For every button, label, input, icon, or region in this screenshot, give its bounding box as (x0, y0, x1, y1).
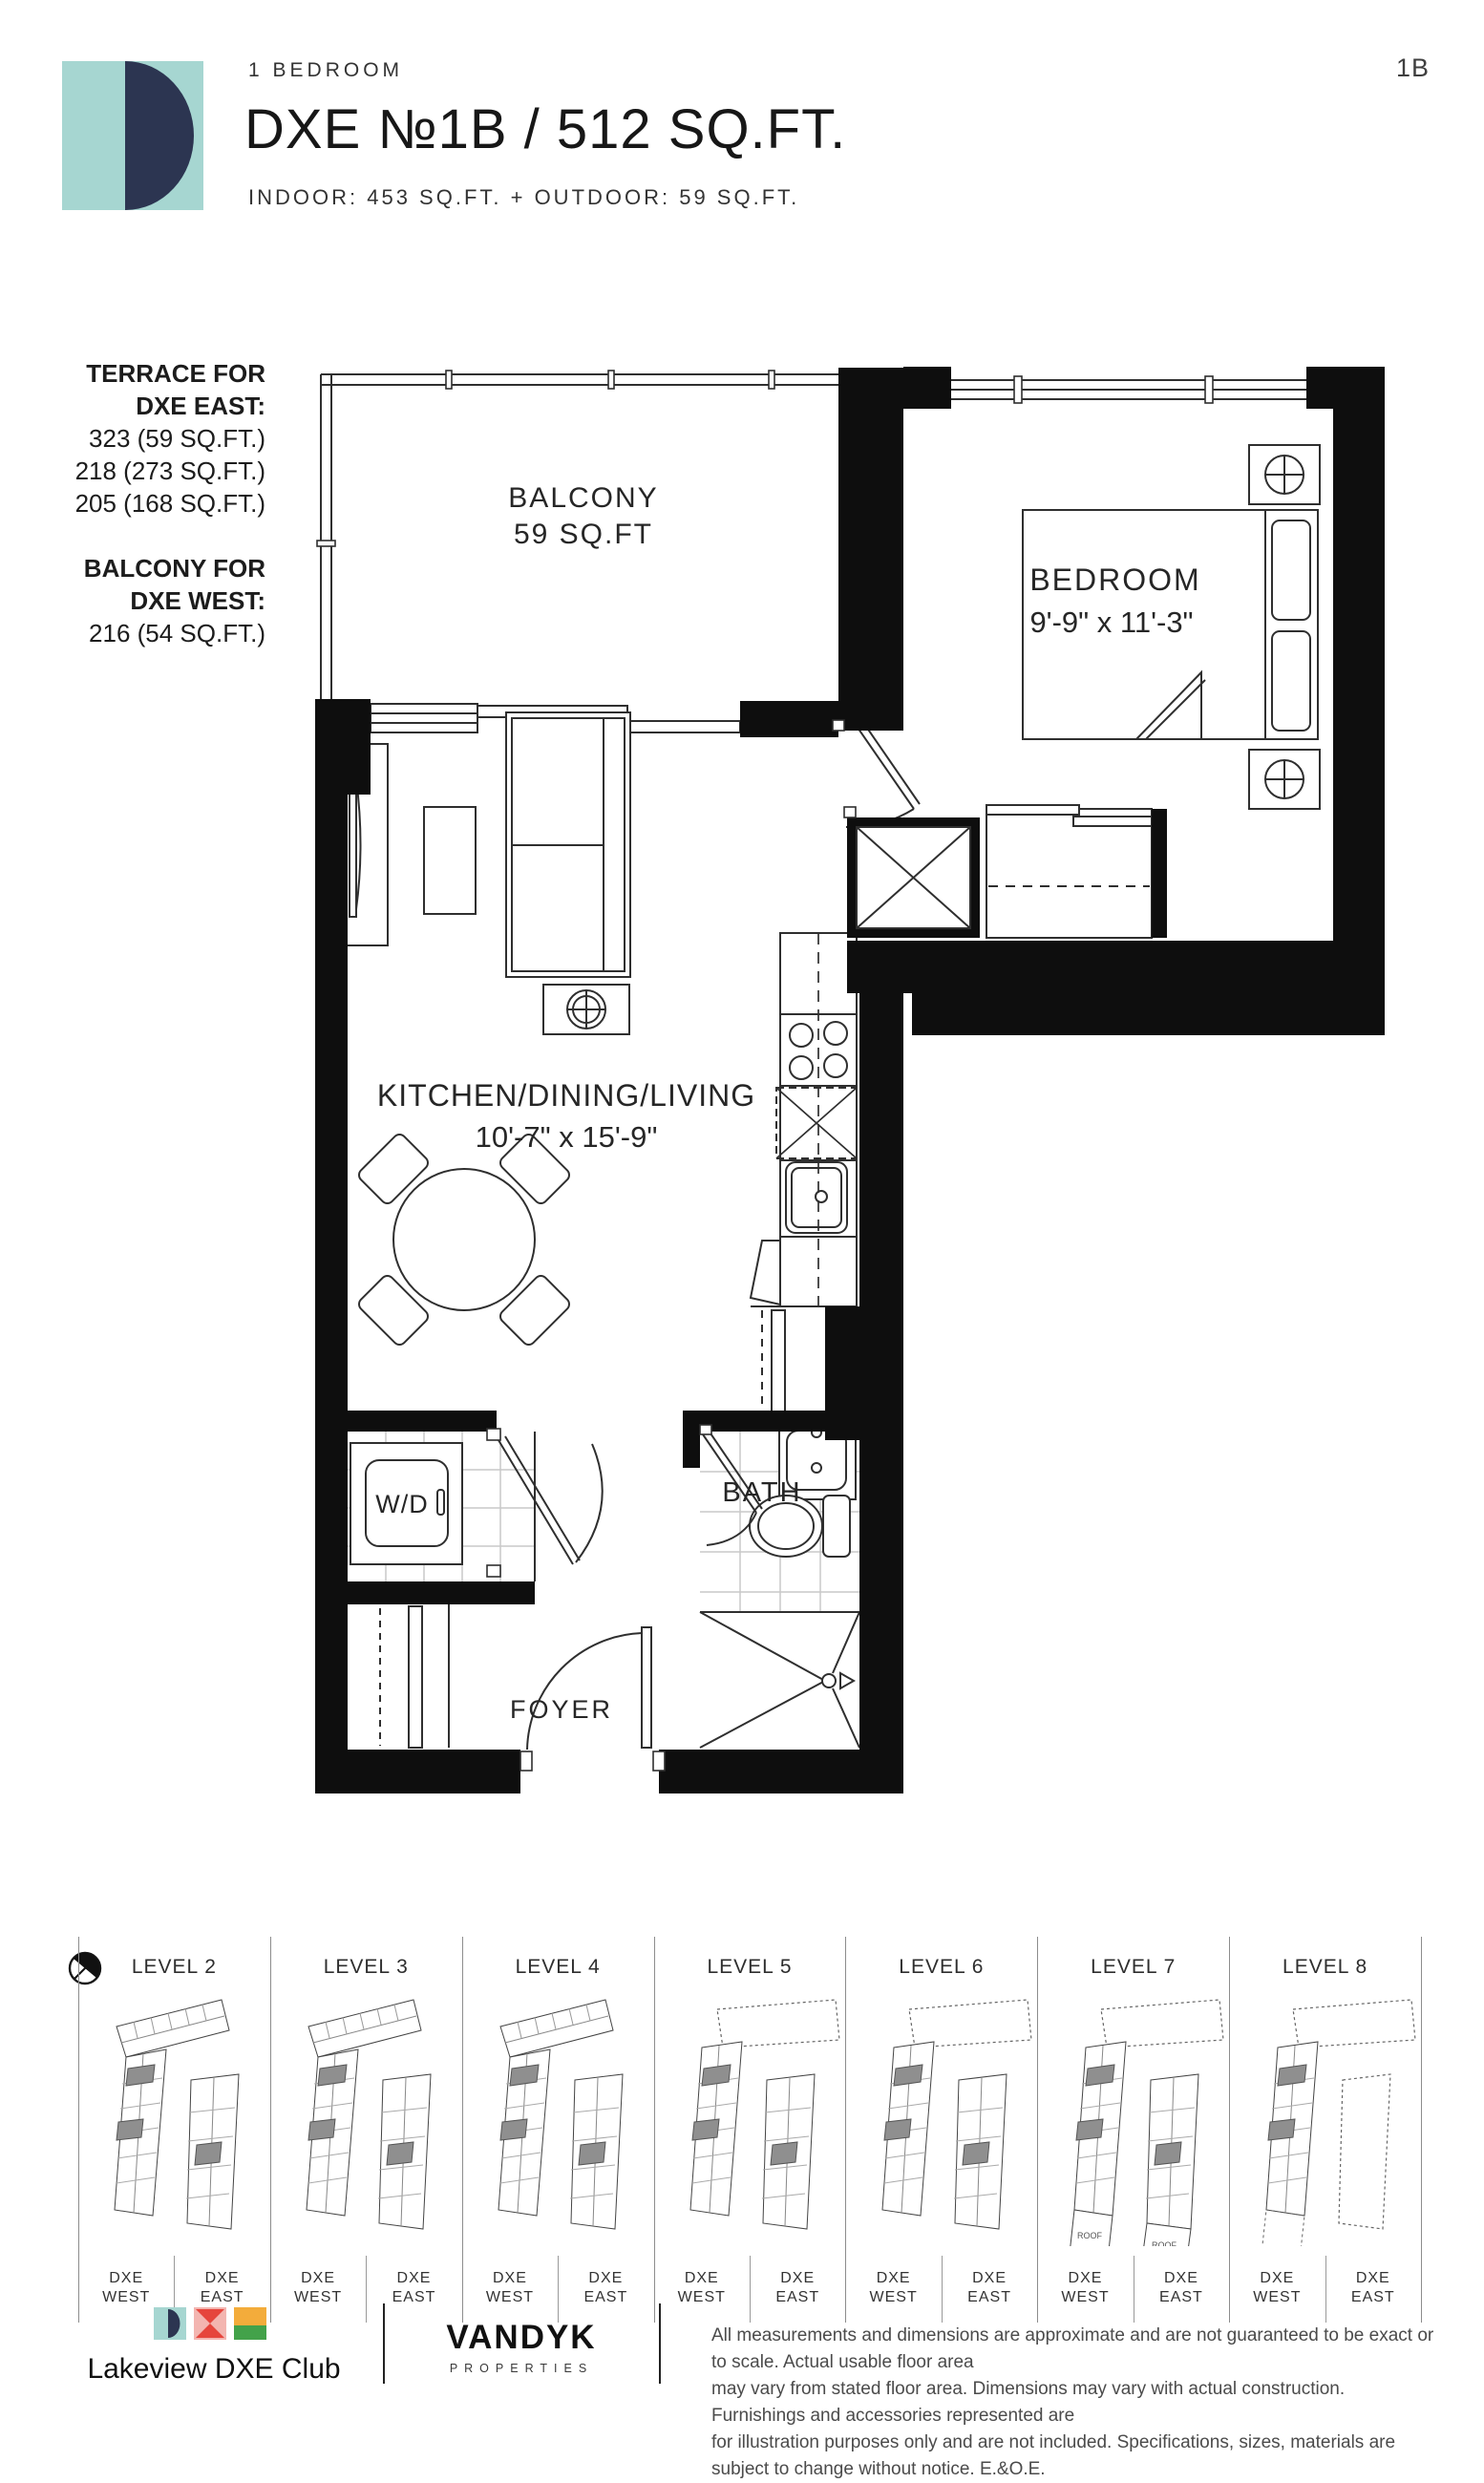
terrace-balcony-notes: TERRACE FOR DXE EAST: 323 (59 SQ.FT.) 21… (38, 357, 265, 649)
dxe-west-label: DXEWEST (274, 2269, 362, 2307)
terrace-item: 323 (59 SQ.FT.) (38, 422, 265, 455)
brand-square-d-icon (154, 2307, 186, 2340)
level-label: LEVEL 4 (462, 1956, 654, 1979)
svg-text:ROOF: ROOF (1152, 2240, 1177, 2246)
dxe-east-label: DXEEAST (370, 2269, 457, 2307)
terrace-heading-2: DXE EAST: (38, 390, 265, 422)
dxe-east-label: DXEEAST (753, 2269, 841, 2307)
level-cell: LEVEL 5DXEWESTDXEEAST (654, 1929, 846, 2330)
level-label: LEVEL 5 (654, 1956, 846, 1979)
west-east-divider (558, 2256, 559, 2323)
balcony-item: 216 (54 SQ.FT.) (38, 617, 265, 649)
level-label: LEVEL 8 (1229, 1956, 1421, 1979)
west-east-divider (1325, 2256, 1326, 2323)
bedroom-label: BEDROOM (1029, 562, 1200, 597)
dxe-west-label: DXEWEST (82, 2269, 170, 2307)
bath-label: BATH (722, 1477, 801, 1508)
west-east-divider (750, 2256, 751, 2323)
level-thumbnail (78, 1988, 269, 2246)
balcony-label: BALCONY (508, 482, 658, 514)
level-cell: LEVEL 3DXEWESTDXEEAST (270, 1929, 462, 2330)
footer-divider-1 (383, 2303, 385, 2384)
brand-square-x-icon (194, 2307, 226, 2340)
dxe-east-label: DXEEAST (1329, 2269, 1417, 2307)
wd-label: W/D (375, 1490, 428, 1518)
balcony-heading-1: BALCONY FOR (38, 552, 265, 584)
west-east-divider (942, 2256, 943, 2323)
balcony-area: 59 SQ.FT (514, 519, 653, 550)
level-thumbnail (270, 1988, 461, 2246)
bedroom-dims: 9'-9" x 11'-3" (1029, 605, 1193, 639)
developer-name: VANDYK (430, 2319, 613, 2357)
foyer-label: FOYER (510, 1695, 613, 1724)
level-label: LEVEL 6 (845, 1956, 1037, 1979)
footer-divider-2 (659, 2303, 661, 2384)
level-cell: LEVEL 4DXEWESTDXEEAST (462, 1929, 654, 2330)
dxe-east-label: DXEEAST (945, 2269, 1033, 2307)
brand-square-e-icon (234, 2307, 266, 2340)
developer-logo: VANDYK PROPERTIES (430, 2319, 613, 2375)
disclaimer-line: may vary from stated floor area. Dimensi… (711, 2376, 1435, 2430)
balcony-heading-2: DXE WEST: (38, 584, 265, 617)
level-label: LEVEL 2 (78, 1956, 270, 1979)
dxe-west-label: DXEWEST (849, 2269, 937, 2307)
brand-logo-squares (154, 2307, 266, 2340)
dxe-east-label: DXEEAST (1137, 2269, 1225, 2307)
unit-areas: INDOOR: 453 SQ.FT. + OUTDOOR: 59 SQ.FT. (248, 185, 799, 210)
level-label: LEVEL 7 (1037, 1956, 1229, 1979)
level-cell-divider (1421, 1937, 1422, 2323)
dxe-east-label: DXEEAST (562, 2269, 649, 2307)
page-title: DXE №1B / 512 SQ.FT. (244, 97, 846, 161)
level-thumbnail (846, 1988, 1037, 2246)
floorplan-page: { "page": { "code": "1B" }, "header": { … (0, 0, 1484, 2445)
levels-strip: LEVEL 2DXEWESTDXEEASTLEVEL 3DXEWESTDXEEA… (0, 1929, 1484, 2330)
west-east-divider (366, 2256, 367, 2323)
terrace-heading-1: TERRACE FOR (38, 357, 265, 390)
living-dims: 10'-7" x 15'-9" (476, 1120, 658, 1154)
page-code: 1B (1396, 53, 1430, 83)
floor-plan: BALCONY 59 SQ.FT BEDROOM 9'-9" x 11'-3" … (315, 363, 1385, 1795)
level-thumbnail: ROOFROOF (1038, 1988, 1229, 2246)
shaft-interior (857, 827, 970, 928)
level-thumbnail (654, 1988, 845, 2246)
level-thumbnail (1230, 1988, 1421, 2246)
brand-name: Lakeview DXE Club (52, 2353, 376, 2386)
level-cell: LEVEL 7ROOFROOFDXEWESTDXEEAST (1037, 1929, 1229, 2330)
disclaimer-line: All measurements and dimensions are appr… (711, 2323, 1435, 2376)
living-label: KITCHEN/DINING/LIVING (377, 1078, 755, 1113)
dxe-east-label: DXEEAST (178, 2269, 265, 2307)
level-cell: LEVEL 6DXEWESTDXEEAST (845, 1929, 1037, 2330)
disclaimer-line: for illustration purposes only and are n… (711, 2430, 1435, 2483)
level-cell: LEVEL 2DXEWESTDXEEAST (78, 1929, 270, 2330)
dxe-west-label: DXEWEST (1041, 2269, 1129, 2307)
dxe-west-label: DXEWEST (658, 2269, 746, 2307)
west-east-divider (1134, 2256, 1134, 2323)
terrace-item: 205 (168 SQ.FT.) (38, 487, 265, 520)
terrace-item: 218 (273 SQ.FT.) (38, 455, 265, 487)
brand-logo-mark (62, 61, 203, 210)
developer-subtitle: PROPERTIES (430, 2362, 613, 2375)
dxe-west-label: DXEWEST (466, 2269, 554, 2307)
svg-text:ROOF: ROOF (1077, 2231, 1103, 2240)
dxe-west-label: DXEWEST (1233, 2269, 1321, 2307)
level-thumbnail (462, 1988, 653, 2246)
level-cell: LEVEL 8DXEWESTDXEEAST (1229, 1929, 1421, 2330)
level-label: LEVEL 3 (270, 1956, 462, 1979)
legal-disclaimer: All measurements and dimensions are appr… (711, 2323, 1435, 2483)
unit-category: 1 BEDROOM (248, 59, 403, 82)
